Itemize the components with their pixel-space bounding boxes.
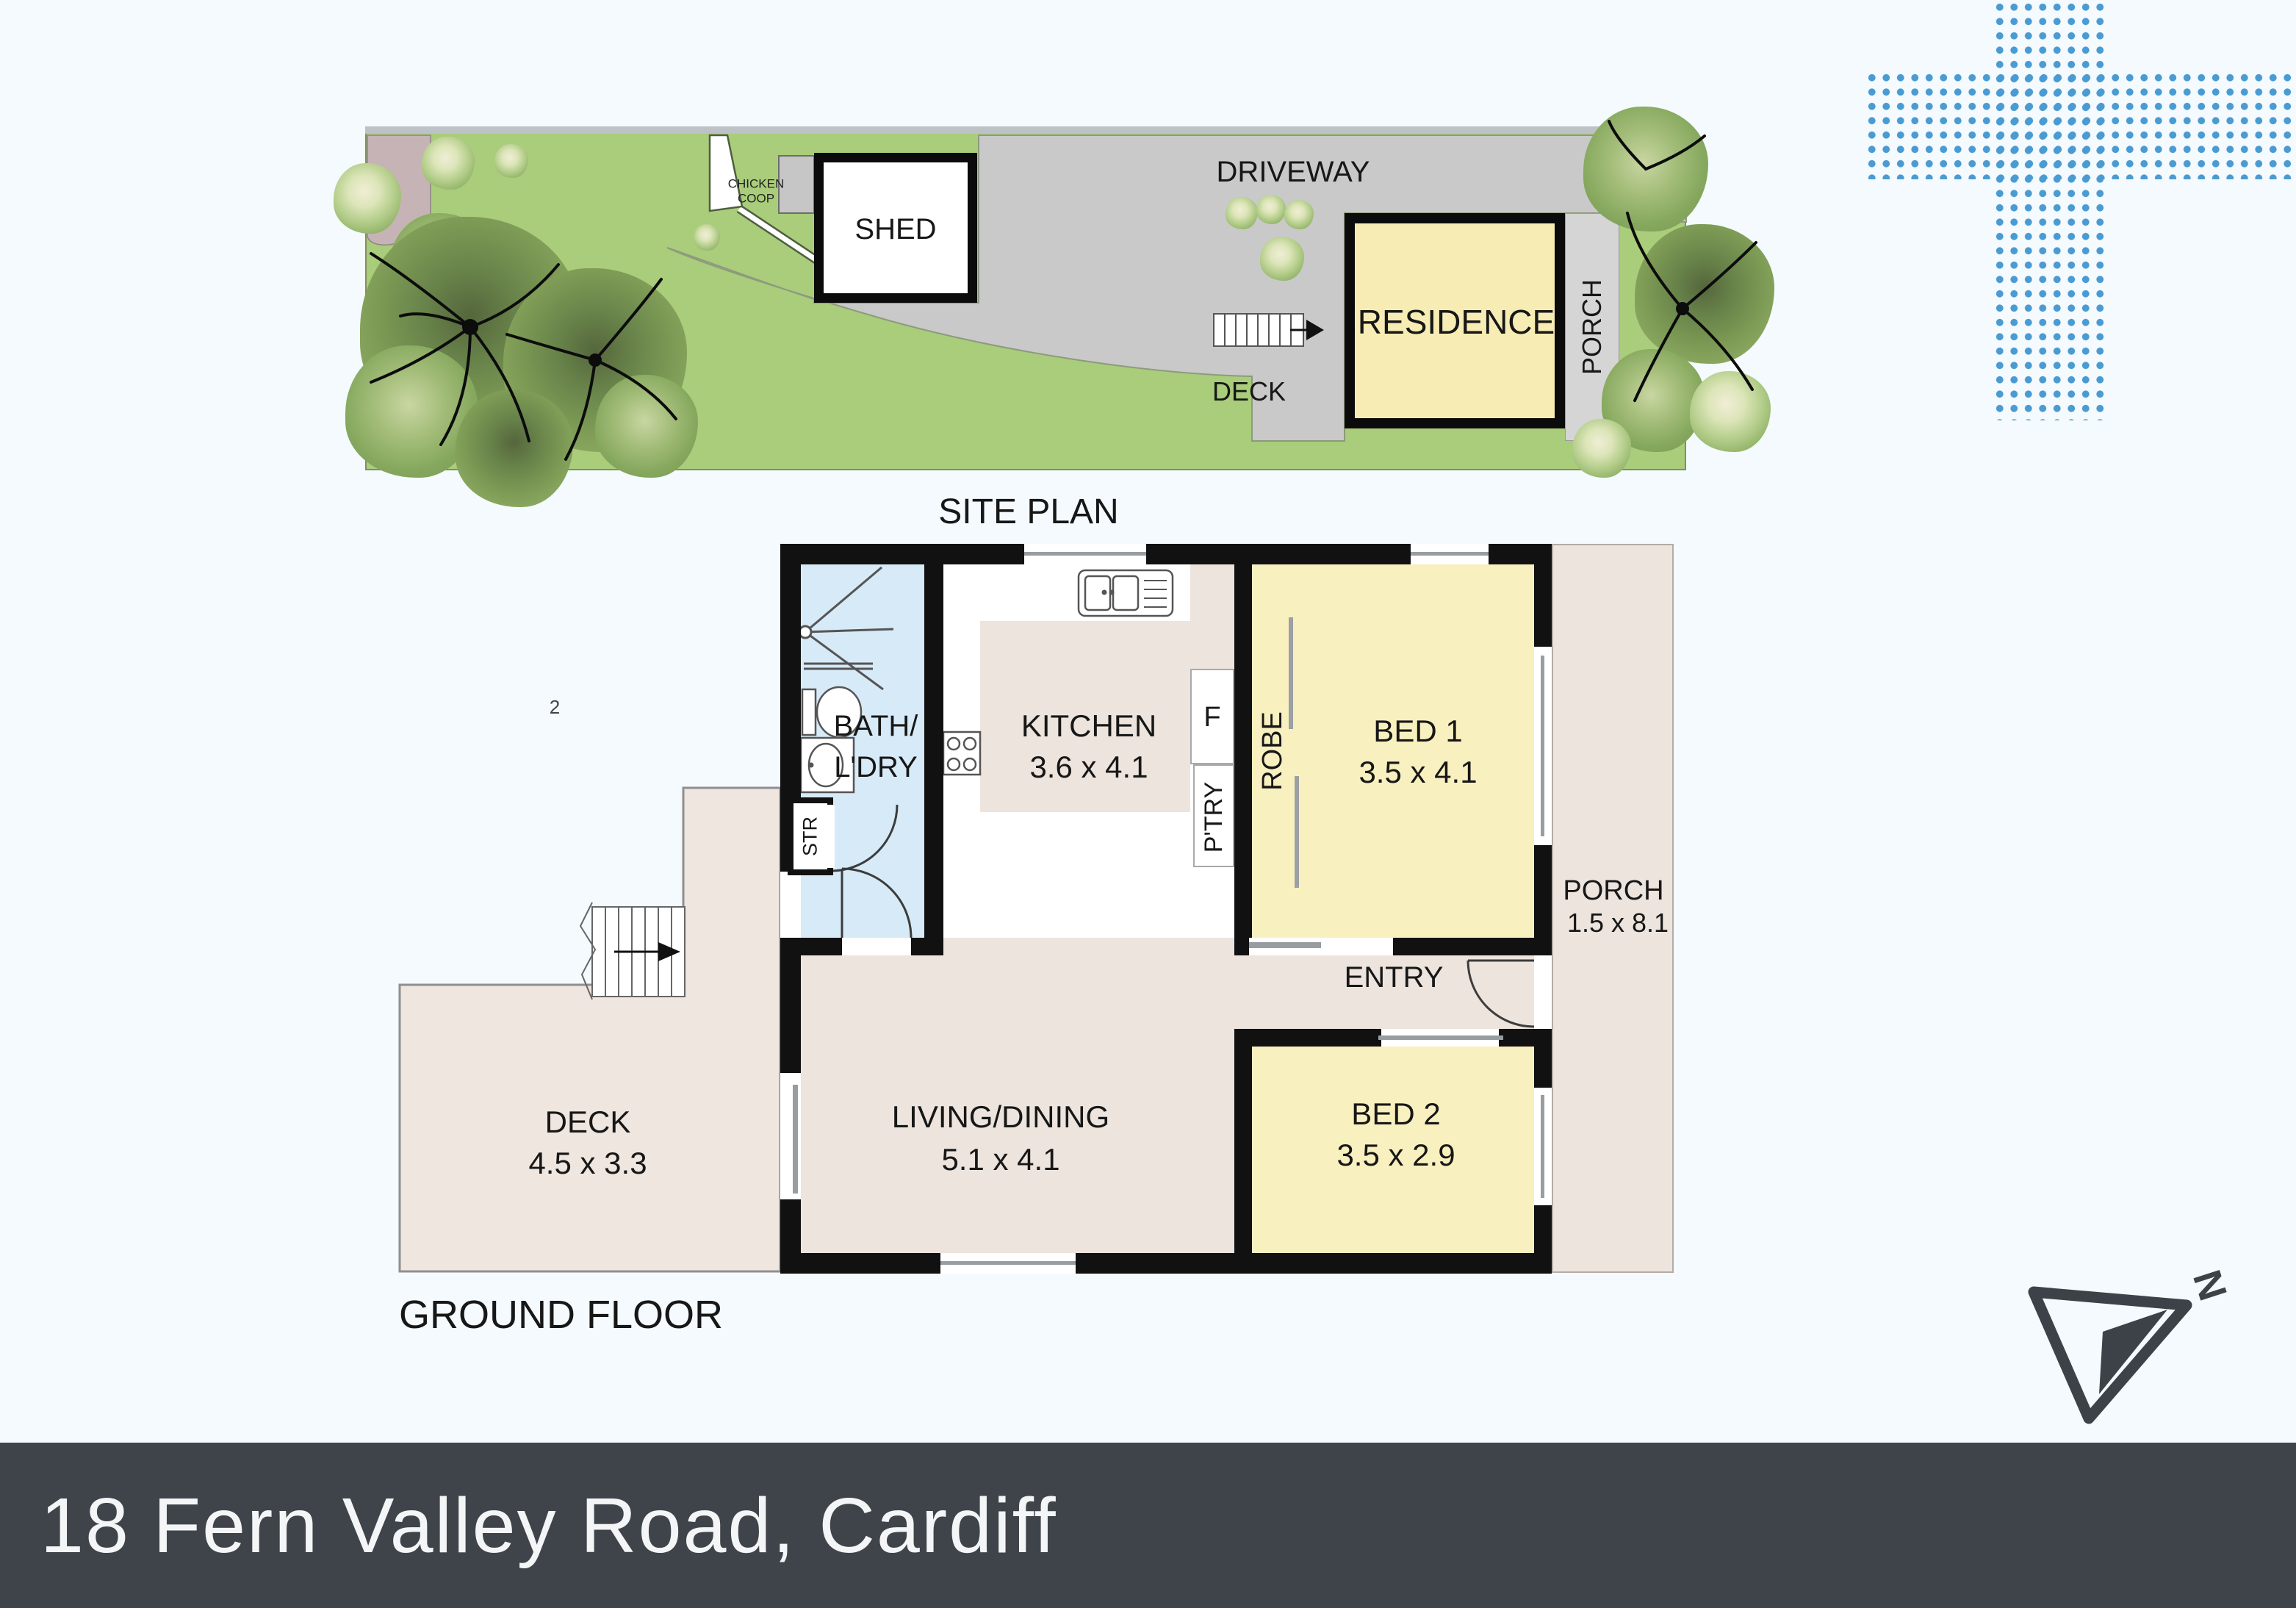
store-door-opening — [827, 805, 835, 868]
bed2-label: BED 2 — [1351, 1099, 1440, 1130]
living-label: LIVING/DINING — [892, 1102, 1109, 1133]
living-dims: 5.1 x 4.1 — [941, 1144, 1059, 1175]
address-banner: 18 Fern Valley Road, Cardiff — [0, 1443, 2296, 1608]
chicken-coop-label-2: COOP — [738, 193, 774, 205]
address-text: 18 Fern Valley Road, Cardiff — [40, 1487, 1057, 1565]
living-window-glass — [940, 1261, 1076, 1265]
page-number: 2 — [550, 697, 560, 717]
pantry-label: P'TRY — [1201, 782, 1226, 853]
robe-label: ROBE — [1259, 711, 1286, 791]
bath-label-2: L'DRY — [834, 753, 918, 782]
bed2-dims: 3.5 x 2.9 — [1336, 1140, 1455, 1171]
bed2-side-window-glass — [1541, 1095, 1544, 1198]
kitchen-dims: 3.6 x 4.1 — [1029, 752, 1148, 783]
bed1-label: BED 1 — [1373, 716, 1462, 747]
bath-label-1: BATH/ — [834, 711, 918, 741]
driveway-label: DRIVEWAY — [1217, 157, 1370, 187]
bed1-side-window-glass — [1541, 656, 1544, 836]
deck-dims: 4.5 x 3.3 — [528, 1148, 647, 1179]
site-porch-label: PORCH — [1579, 279, 1605, 375]
bed1-cavity-slider — [1249, 942, 1321, 948]
bed2-window-glass — [1378, 1035, 1503, 1040]
bed1-dims: 3.5 x 4.1 — [1358, 757, 1477, 788]
chicken-coop-label-1: CHICKEN — [728, 178, 785, 190]
store-label: STR — [801, 816, 821, 856]
fridge-label: F — [1203, 703, 1220, 731]
floorplan-page: DRIVEWAY SHED RESIDENCE PORCH DECK CHICK… — [0, 0, 2296, 1608]
ground-floor-title: GROUND FLOOR — [399, 1295, 723, 1335]
bed1-top-window-glass — [1411, 552, 1489, 556]
kitchen-label: KITCHEN — [1021, 711, 1156, 742]
shed-label: SHED — [854, 215, 936, 244]
residence-label: RESIDENCE — [1358, 305, 1555, 339]
porch-dims: 1.5 x 8.1 — [1567, 910, 1669, 936]
entry-label: ENTRY — [1345, 963, 1444, 992]
tree-branches — [0, 0, 2296, 1608]
kitchen-window-glass — [1024, 552, 1146, 556]
site-plan-title: SITE PLAN — [938, 495, 1118, 530]
deck-label: DECK — [545, 1107, 631, 1138]
site-deck-label: DECK — [1212, 378, 1286, 405]
deck-slider-door — [793, 1085, 798, 1194]
porch-label: PORCH — [1563, 877, 1663, 905]
